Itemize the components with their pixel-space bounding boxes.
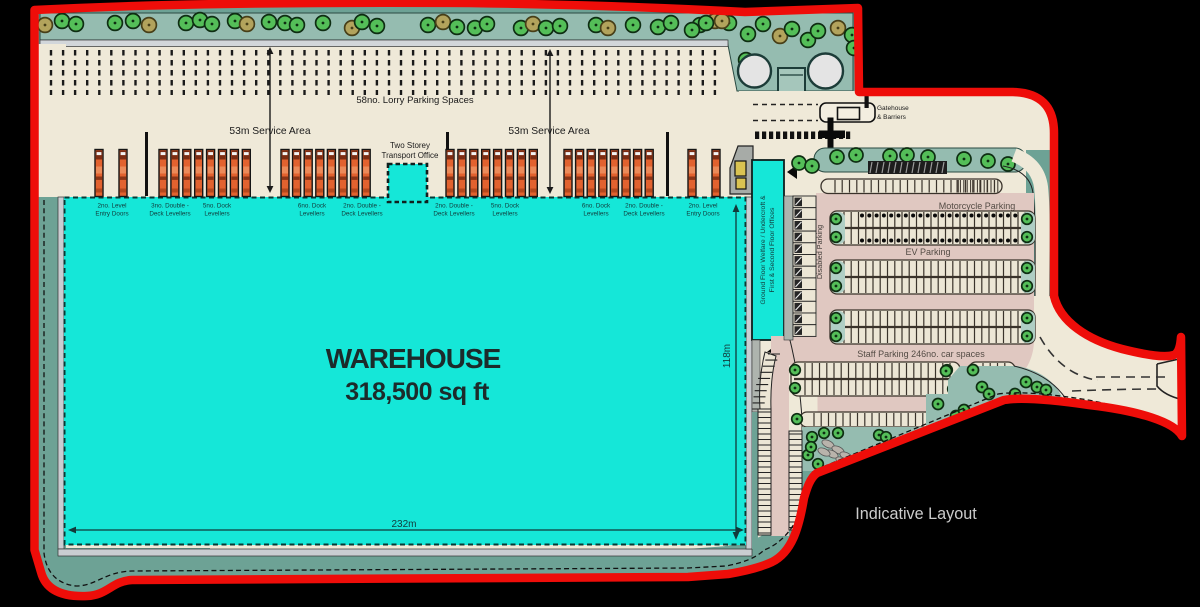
svg-text:Entry Doors: Entry Doors: [95, 211, 128, 218]
svg-text:2no. Level: 2no. Level: [97, 203, 126, 210]
svg-text:Indicative Layout: Indicative Layout: [855, 505, 977, 523]
svg-text:Entry Doors: Entry Doors: [686, 211, 719, 218]
svg-text:First & Second Floor Offices: First & Second Floor Offices: [769, 207, 776, 292]
svg-text:2no. Double -: 2no. Double -: [343, 203, 381, 210]
svg-text:Staff Parking 246no. car space: Staff Parking 246no. car spaces: [857, 349, 985, 359]
svg-text:2no. Level: 2no. Level: [688, 203, 717, 210]
svg-text:58no. Lorry Parking Spaces: 58no. Lorry Parking Spaces: [356, 95, 473, 106]
svg-text:Deck Levellers: Deck Levellers: [149, 211, 190, 218]
svg-text:6no. Dock: 6no. Dock: [582, 203, 611, 210]
svg-text:Two Storey: Two Storey: [390, 141, 430, 150]
svg-text:& Barriers: & Barriers: [877, 114, 907, 121]
svg-text:EV Parking: EV Parking: [905, 247, 950, 257]
svg-text:Levellers: Levellers: [492, 211, 517, 218]
svg-text:Deck Levellers: Deck Levellers: [433, 211, 474, 218]
svg-text:Deck Levellers: Deck Levellers: [623, 211, 664, 218]
svg-text:Ground Floor Welfare / Undercr: Ground Floor Welfare / Undercroft &: [760, 195, 767, 305]
svg-text:2no. Double -: 2no. Double -: [625, 203, 663, 210]
svg-text:53m Service Area: 53m Service Area: [229, 126, 311, 137]
svg-text:Motorcycle Parking: Motorcycle Parking: [939, 201, 1016, 211]
svg-text:53m Service Area: 53m Service Area: [508, 126, 590, 137]
svg-text:Gatehouse: Gatehouse: [877, 105, 909, 112]
svg-text:3no. Double -: 3no. Double -: [151, 203, 189, 210]
svg-text:Levellers: Levellers: [204, 211, 229, 218]
svg-text:232m: 232m: [391, 519, 416, 530]
svg-text:118m: 118m: [722, 344, 733, 368]
svg-text:Disabled Parking: Disabled Parking: [815, 225, 824, 279]
svg-text:318,500 sq ft: 318,500 sq ft: [345, 378, 490, 406]
svg-text:2no. Double -: 2no. Double -: [435, 203, 473, 210]
svg-text:WAREHOUSE: WAREHOUSE: [326, 343, 501, 374]
svg-text:Levellers: Levellers: [299, 211, 324, 218]
svg-text:5no. Dock: 5no. Dock: [203, 203, 232, 210]
svg-text:Transport Office: Transport Office: [382, 151, 439, 160]
svg-text:6no. Dock: 6no. Dock: [298, 203, 327, 210]
svg-text:5no. Dock: 5no. Dock: [491, 203, 520, 210]
svg-text:Levellers: Levellers: [583, 211, 608, 218]
svg-text:Deck Levellers: Deck Levellers: [341, 211, 382, 218]
